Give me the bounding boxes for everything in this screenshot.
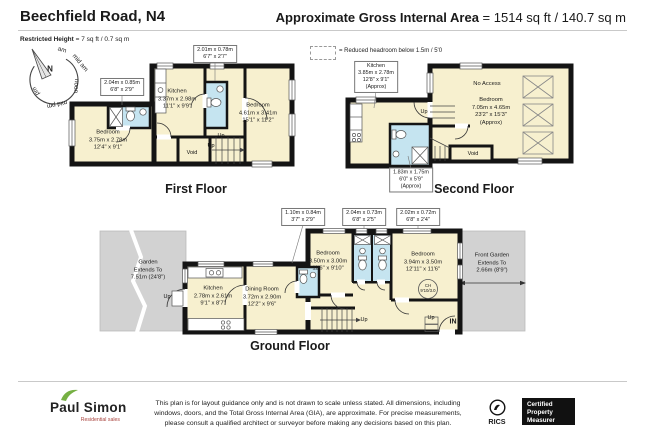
ff-dim-box-left: 2.04m x 0.85m 6'8" x 2'9" — [100, 78, 144, 96]
gf-room-label-bedroom-middle: Bedroom 3.50m x 3.00m 11'6" x 9'10" — [309, 251, 347, 274]
room-approx: (Approx) — [393, 184, 429, 191]
ff-room-label-bedroom-left: Bedroom 3.75m x 2.78m 12'4" x 9'1" — [89, 130, 127, 153]
gf-in-label: IN — [450, 319, 457, 326]
sf-up-label: Up — [420, 109, 427, 115]
gf-ceiling-height-label: CH 9'10/3.0 — [420, 284, 435, 294]
room-approx: (Approx) — [358, 84, 394, 91]
sf-no-access-label: No Access — [473, 81, 500, 89]
gia-value: = 1514 sq ft / 140.7 sq m — [483, 10, 626, 25]
garden-line: Front Garden — [475, 253, 509, 261]
dim-imperial: 6'8" x 2'4" — [400, 217, 436, 224]
gf-up-front-label: Up — [427, 315, 434, 321]
footer-divider — [18, 381, 627, 382]
room-name: Bedroom — [472, 97, 510, 105]
ground-floor-title: Ground Floor — [250, 339, 330, 353]
room-metric: 3.50m x 3.00m — [309, 258, 347, 266]
garden-line: Extends To — [475, 260, 509, 268]
gf-rooms — [185, 231, 460, 332]
disclaimer-line: This plan is for layout guidance only an… — [140, 399, 476, 409]
room-metric: 1.83m x 1.75m — [393, 169, 429, 176]
room-metric: 3.94m x 3.50m — [404, 259, 442, 267]
gia-label: Approximate Gross Internal Area — [276, 10, 479, 25]
room-metric: 3.72m x 2.90m — [243, 294, 281, 302]
room-name: Kitchen — [158, 89, 196, 97]
sf-legend-text: = Reduced headroom below 1.5m / 5'0 — [339, 48, 442, 54]
no-access-text: No Access — [473, 81, 500, 89]
sf-void-label: Void — [468, 151, 479, 157]
gf-dim-box-2: 2.04m x 0.73m 6'8" x 2'5" — [342, 208, 386, 226]
room-metric: 4.61m x 3.41m — [239, 110, 277, 118]
room-imperial: 15'1" x 11'2" — [239, 118, 277, 126]
room-name: Dining Room — [243, 287, 281, 295]
rics-label: RICS — [488, 417, 505, 426]
floorplan-page: Beechfield Road, N4 Approximate Gross In… — [0, 0, 645, 430]
gf-up-rear-label: Up — [163, 294, 170, 300]
room-name: Bedroom — [309, 251, 347, 259]
room-imperial: 12'4" x 9'1" — [89, 145, 127, 153]
room-imperial: 11'6" x 9'10" — [309, 266, 347, 274]
agency-tagline: Residential sales — [50, 417, 120, 423]
room-name: Kitchen — [194, 286, 232, 294]
badge-line: Property — [527, 409, 575, 417]
room-metric: 3.85m x 2.78m — [358, 70, 394, 77]
dim-metric: 1.10m x 0.84m — [285, 210, 321, 217]
ff-dim-left-metric: 2.04m x 0.85m — [104, 80, 140, 87]
first-floor-title: First Floor — [165, 182, 227, 196]
gf-room-label-kitchen: Kitchen 2.78m x 2.61m 9'1" x 8'7" — [194, 286, 232, 309]
ff-up-label-2: Up — [207, 143, 214, 149]
ch-line: 9'10/3.0 — [420, 289, 435, 294]
room-imperial: 12'2" x 9'6" — [243, 302, 281, 310]
sf-legend-swatch — [310, 46, 336, 60]
garden-line: Garden — [131, 260, 165, 268]
sf-bath-box: 1.83m x 1.75m 6'0" x 5'9" (Approx) — [389, 167, 433, 192]
ff-room-label-bedroom-right: Bedroom 4.61m x 3.41m 15'1" x 11'2" — [239, 103, 277, 126]
room-imperial: 12'11" x 11'6" — [404, 267, 442, 275]
ff-dim-right-imperial: 6'7" x 2'7" — [197, 54, 233, 61]
sf-kitchen-box: Kitchen 3.85m x 2.78m 12'8" x 9'1" (Appr… — [354, 61, 398, 93]
gf-dim-box-1: 1.10m x 0.84m 3'7" x 2'9" — [281, 208, 325, 226]
gf-garden-label: Garden Extends To 7.51m (24'8") — [131, 260, 165, 283]
compass-north-label: N — [47, 65, 53, 74]
gf-room-label-bedroom-front: Bedroom 3.94m x 3.50m 12'11" x 11'6" — [404, 252, 442, 275]
garden-line: 7.51m (24'8") — [131, 275, 165, 283]
badge-line: Measurer — [527, 417, 575, 425]
room-metric: 3.37m x 2.98m — [158, 96, 196, 104]
gf-front-garden-label: Front Garden Extends To 2.66m (8'9") — [475, 253, 509, 276]
garden-line: Extends To — [131, 267, 165, 275]
ground-floor-plan-drawing — [95, 205, 535, 360]
header-divider — [18, 30, 627, 31]
disclaimer-line: windows, doors, and the Total Gross Inte… — [140, 409, 476, 419]
room-imperial: 23'2" x 15'3" — [472, 112, 510, 120]
rics-icon — [488, 399, 507, 416]
room-imperial: 6'0" x 5'9" — [393, 176, 429, 183]
room-metric: 2.78m x 2.61m — [194, 293, 232, 301]
dim-imperial: 3'7" x 2'9" — [285, 217, 321, 224]
room-approx: (Approx) — [472, 120, 510, 128]
disclaimer-line: please consult a qualified architect or … — [140, 419, 476, 429]
ff-dim-right-metric: 2.01m x 0.78m — [197, 47, 233, 54]
gross-internal-area: Approximate Gross Internal Area = 1514 s… — [276, 10, 626, 25]
room-metric: 7.05m x 4.65m — [472, 104, 510, 112]
dim-imperial: 6'8" x 2'5" — [346, 217, 382, 224]
ff-up-label-1: Up — [217, 133, 224, 139]
room-imperial: 11'1" x 9'9" — [158, 104, 196, 112]
room-name: Kitchen — [358, 63, 394, 70]
room-name: Bedroom — [89, 130, 127, 138]
gf-dim-box-3: 2.02m x 0.72m 6'8" x 2'4" — [396, 208, 440, 226]
ff-void-label: Void — [187, 150, 198, 156]
sf-room-label-bedroom: Bedroom 7.05m x 4.65m 23'2" x 15'3" (App… — [472, 97, 510, 127]
dim-metric: 2.04m x 0.73m — [346, 210, 382, 217]
ff-dim-left-imperial: 6'8" x 2'9" — [104, 87, 140, 94]
agency-logo: Paul Simon — [50, 400, 122, 415]
gf-room-label-dining: Dining Room 3.72m x 2.90m 12'2" x 9'6" — [243, 287, 281, 310]
room-metric: 3.75m x 2.78m — [89, 137, 127, 145]
ff-room-label-kitchen: Kitchen 3.37m x 2.98m 11'1" x 9'9" — [158, 89, 196, 112]
room-name: Bedroom — [239, 103, 277, 111]
room-name: Bedroom — [404, 252, 442, 260]
gf-up-stairs-label: Up — [360, 317, 367, 323]
badge-line: Certified — [527, 401, 575, 409]
second-floor-title: Second Floor — [434, 182, 514, 196]
disclaimer-text: This plan is for layout guidance only an… — [140, 399, 476, 430]
dim-metric: 2.02m x 0.72m — [400, 210, 436, 217]
room-imperial: 12'8" x 9'1" — [358, 77, 394, 84]
page-title: Beechfield Road, N4 — [20, 8, 165, 25]
garden-line: 2.66m (8'9") — [475, 268, 509, 276]
ff-dim-box-right: 2.01m x 0.78m 6'7" x 2'7" — [193, 45, 237, 63]
room-imperial: 9'1" x 8'7" — [194, 301, 232, 309]
certified-property-measurer-badge: Certified Property Measurer — [522, 398, 575, 425]
